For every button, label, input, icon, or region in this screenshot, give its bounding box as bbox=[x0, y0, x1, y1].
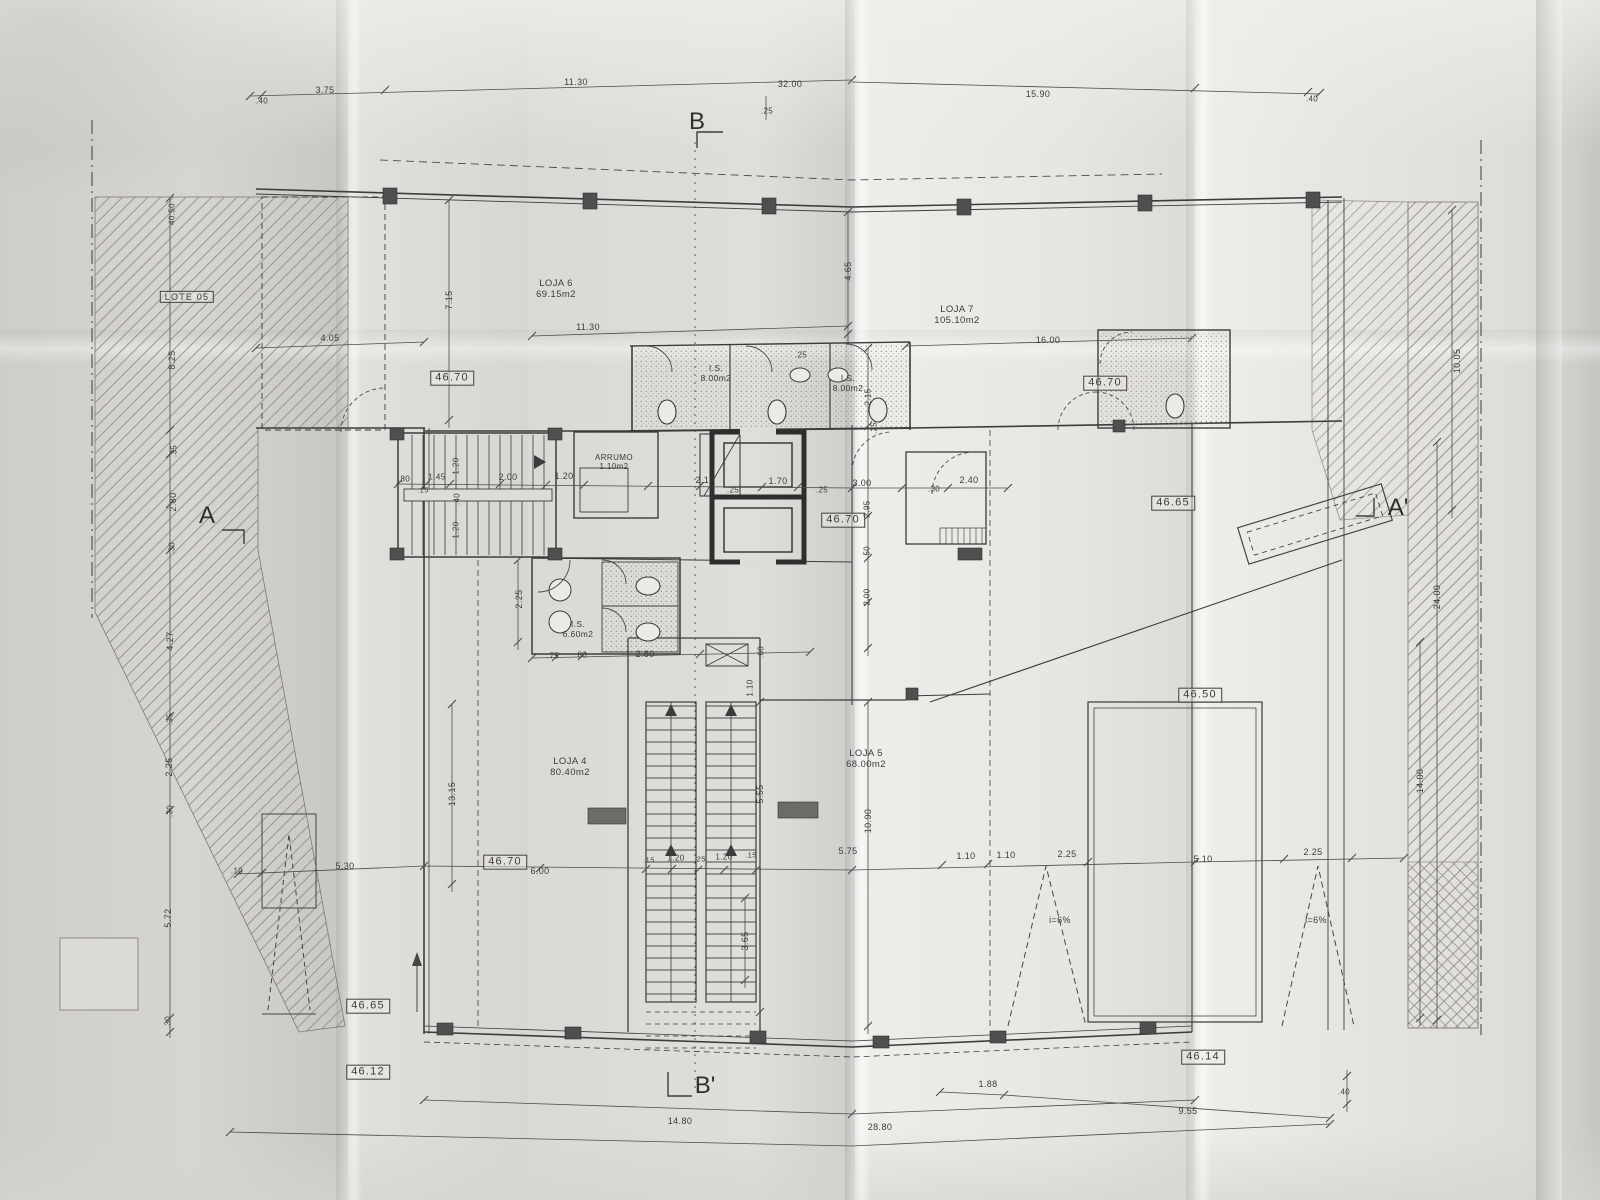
adjacent-lot-hatch bbox=[60, 197, 1478, 1032]
ramp-stairs bbox=[646, 644, 756, 1048]
floor-plan-drawing bbox=[0, 0, 1600, 1200]
bathrooms bbox=[532, 332, 1228, 654]
building-walls bbox=[256, 189, 1344, 1057]
elevator-core bbox=[712, 428, 804, 565]
stair-core bbox=[398, 432, 740, 557]
ramps-and-planters bbox=[262, 484, 1392, 1026]
photographed-floor-plan: BB'AA'LOTE 05LOJA 6 69.15m2LOJA 7 105.10… bbox=[0, 0, 1600, 1200]
section-lines bbox=[222, 132, 1374, 1096]
